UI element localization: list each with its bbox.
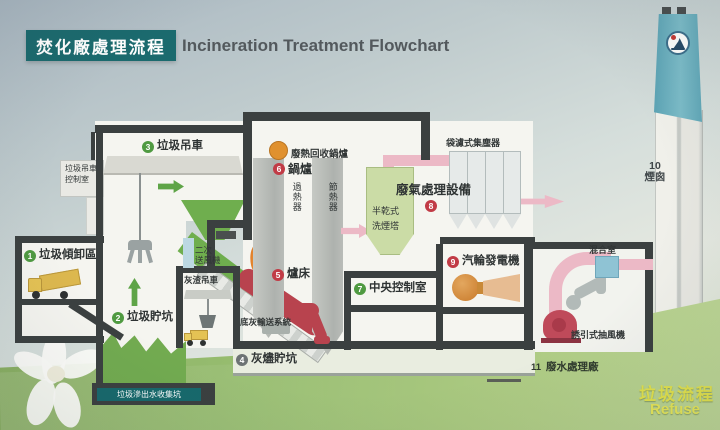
- station-5-label: 5 爐床: [272, 269, 310, 281]
- station-9-number: 9: [447, 256, 459, 268]
- boiler-drum-icon: [269, 141, 288, 160]
- wall: [96, 125, 103, 390]
- station-4-text: 灰燼貯坑: [251, 354, 297, 366]
- plant-logo-icon: [666, 31, 690, 55]
- station-10-text: 煙囪: [637, 171, 673, 184]
- station-8-number: 8: [425, 200, 437, 212]
- duct-joint: [566, 295, 581, 310]
- wall: [243, 112, 430, 121]
- station-11-label: 11 廢水處理廠: [531, 362, 599, 373]
- wall: [176, 266, 183, 348]
- footer-flow-en: Refuse: [650, 401, 700, 418]
- flowchart-sign: 焚化廠處理流程 Incineration Treatment Flowchart…: [0, 0, 720, 430]
- control-room-mast: [91, 132, 95, 162]
- wall: [233, 266, 240, 348]
- band-edge: [233, 373, 535, 376]
- wall: [95, 125, 248, 133]
- flue-duct-to-chimney: [619, 259, 653, 270]
- economizer-label: 節熱器: [327, 182, 338, 232]
- station-11-number: 11: [531, 363, 541, 373]
- wall: [440, 237, 535, 244]
- mixing-chamber: [595, 256, 619, 278]
- wall: [524, 237, 533, 350]
- station-1-text: 垃圾傾卸區: [39, 250, 97, 262]
- station-2-label: 2 垃圾貯坑: [112, 312, 173, 324]
- wall: [436, 244, 443, 350]
- scrubber-label-2: 洗煙塔: [372, 221, 399, 232]
- page-title-en: Incineration Treatment Flowchart: [182, 36, 449, 56]
- station-11-text: 廢水處理廠: [546, 362, 599, 373]
- bag-filter-label: 袋濾式集塵器: [446, 138, 500, 149]
- station-9-label: 9 汽輪發電機: [447, 256, 520, 268]
- leachate-pit-label: 垃圾滲出水收集坑: [97, 388, 201, 401]
- feeder-box: [216, 231, 236, 239]
- station-3-number: 3: [142, 141, 154, 153]
- secondary-fan-label-2: 送風機: [195, 255, 221, 265]
- station-8-label: 廢氣處理設備: [396, 184, 471, 197]
- station-2-text: 垃圾貯坑: [127, 312, 173, 324]
- station-2-number: 2: [112, 312, 124, 324]
- station-8-text: 廢氣處理設備: [396, 184, 471, 197]
- station-3-text: 垃圾吊車: [157, 141, 203, 153]
- wall: [15, 236, 22, 343]
- station-7-label: 7 中央控制室: [354, 283, 427, 295]
- crane-beam: [103, 156, 243, 175]
- wall: [20, 299, 98, 305]
- station-5-text: 爐床: [287, 269, 310, 281]
- wall: [15, 236, 104, 243]
- wall: [15, 336, 104, 343]
- station-7-number: 7: [354, 283, 366, 295]
- station-1-label: 1 垃圾傾卸區: [24, 250, 97, 262]
- flue-duct-to-bagfilter: [383, 155, 450, 166]
- boiler-pass-1: [253, 158, 284, 338]
- crane-cable: [139, 173, 141, 243]
- wall: [421, 112, 430, 160]
- station-4-number: 4: [236, 354, 248, 366]
- station-3-label: 3 垃圾吊車: [142, 141, 203, 153]
- scrubber-label-1: 半乾式: [372, 206, 399, 217]
- wall: [344, 271, 443, 278]
- wall: [344, 305, 443, 312]
- mixing-chamber-label: 混合室: [589, 245, 616, 256]
- station-1-number: 1: [24, 250, 36, 262]
- station-4-label: 4 灰燼貯坑: [236, 354, 297, 366]
- secondary-fan-label-1: 二次: [195, 245, 212, 255]
- station-9-text: 汽輪發電機: [462, 256, 520, 268]
- ash-crane-cable: [207, 299, 209, 315]
- station-5-number: 5: [272, 269, 284, 281]
- induced-fan-label: 誘引式抽風機: [571, 330, 625, 341]
- bottom-ash-label: 底灰輸送系統: [240, 317, 291, 327]
- wall: [436, 307, 531, 314]
- grass-dash: [487, 379, 521, 382]
- ash-crane-beam: [184, 290, 232, 299]
- station-7-text: 中央控制室: [369, 283, 427, 295]
- crane-control-label-1: 垃圾吊車: [65, 164, 97, 174]
- secondary-fan-pipe: [183, 238, 194, 268]
- wall: [233, 341, 535, 349]
- ash-crane-label: 灰渣吊車: [184, 275, 218, 285]
- superheater-label: 過熱器: [291, 182, 302, 232]
- station-6-text: 鍋爐: [288, 163, 312, 175]
- station-6-number: 6: [273, 163, 285, 175]
- station-6-label: 6 鍋爐: [273, 163, 312, 175]
- page-title-zh: 焚化廠處理流程: [26, 30, 176, 61]
- boiler-recovery-label: 廢熱回收鍋爐: [291, 149, 348, 160]
- crane-control-label-2: 控制室: [65, 175, 89, 185]
